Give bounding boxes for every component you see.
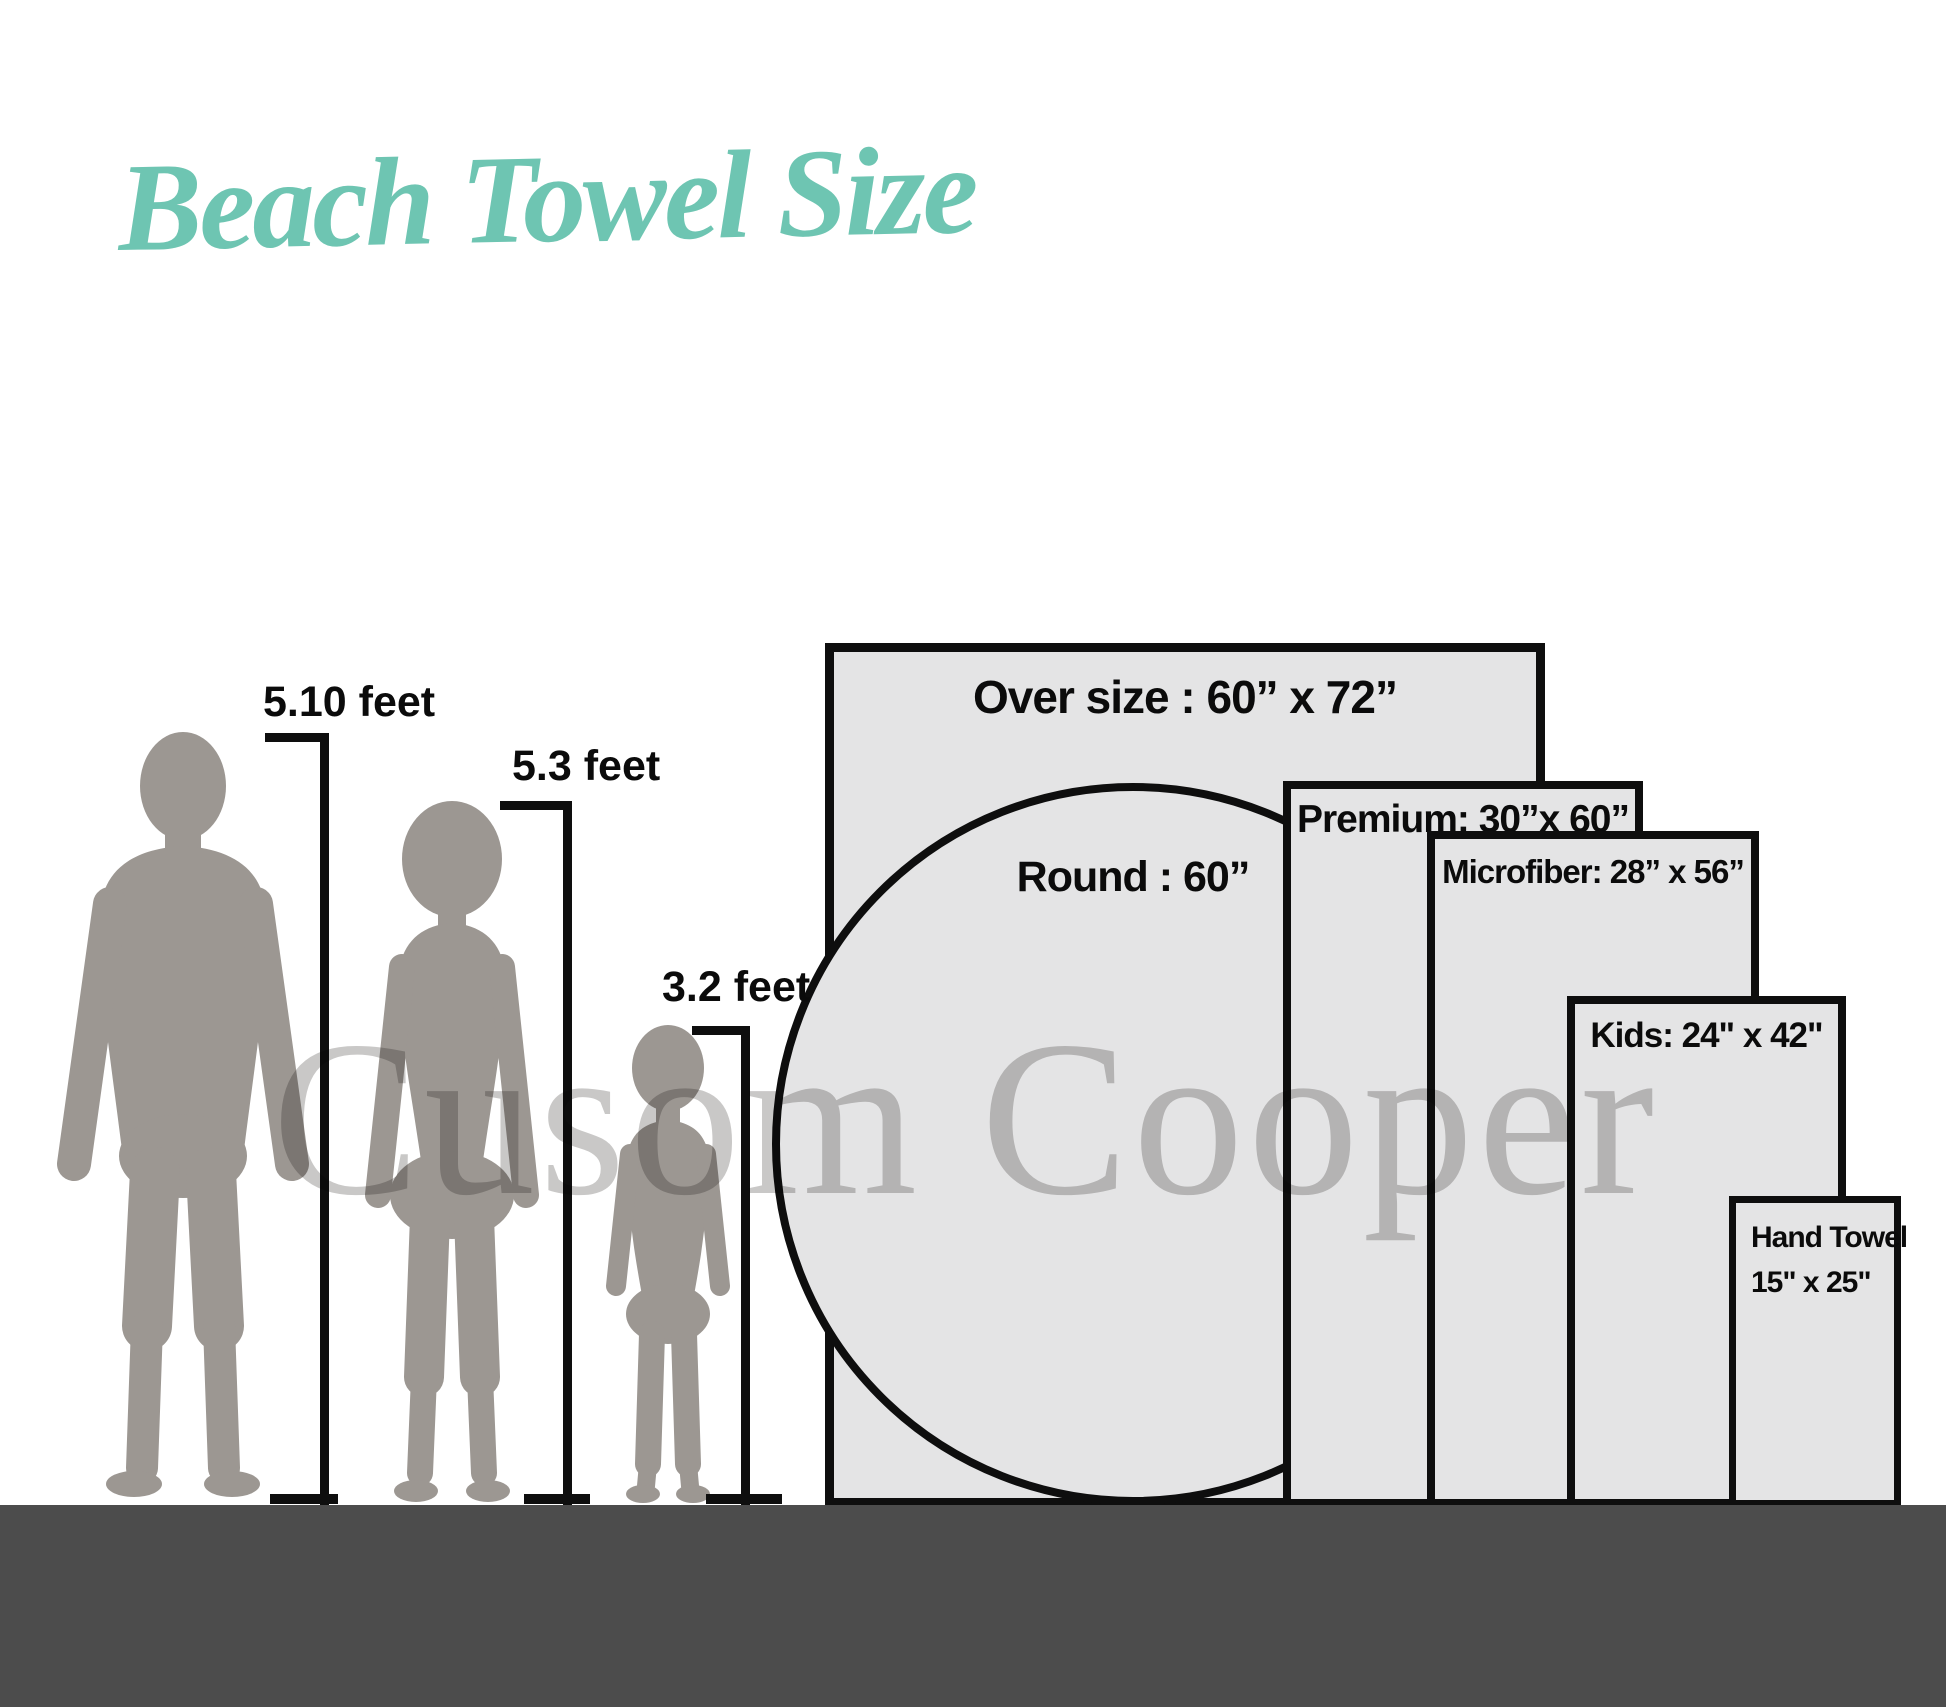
man-bracket-vertical-line (320, 733, 329, 1505)
towel-hand-rect: Hand Towel 15" x 25" (1729, 1196, 1901, 1507)
towel-hand-label: Hand Towel 15" x 25" (1751, 1215, 1907, 1305)
man-bracket-base-line (270, 1494, 338, 1504)
woman-bracket-base-line (524, 1494, 590, 1504)
towel-kids-label: Kids: 24" x 42" (1575, 1016, 1838, 1056)
child-bracket-base-line (706, 1494, 782, 1504)
towel-oversize-label: Over size : 60” x 72” (834, 670, 1536, 724)
towel-hand-label-line1: Hand Towel (1751, 1215, 1907, 1260)
child-silhouette (588, 1022, 748, 1506)
man-silhouette (52, 726, 314, 1506)
page-title: Beach Towel Size (117, 119, 977, 281)
child-height-label: 3.2 feet (662, 963, 810, 1012)
woman-bracket-vertical-line (563, 801, 572, 1505)
man-height-label: 5.10 feet (263, 678, 435, 727)
woman-height-label: 5.3 feet (512, 742, 660, 791)
woman-silhouette (350, 797, 555, 1507)
ground-bar (0, 1505, 1946, 1707)
towel-microfiber-label: Microfiber: 28” x 56” (1435, 853, 1751, 891)
woman-bracket-top-line (500, 801, 572, 810)
child-bracket-vertical-line (741, 1026, 750, 1505)
infographic-canvas: Beach Towel Size Over size : 60” x 72” R… (0, 0, 1946, 1707)
towel-hand-label-line2: 15" x 25" (1751, 1260, 1907, 1305)
